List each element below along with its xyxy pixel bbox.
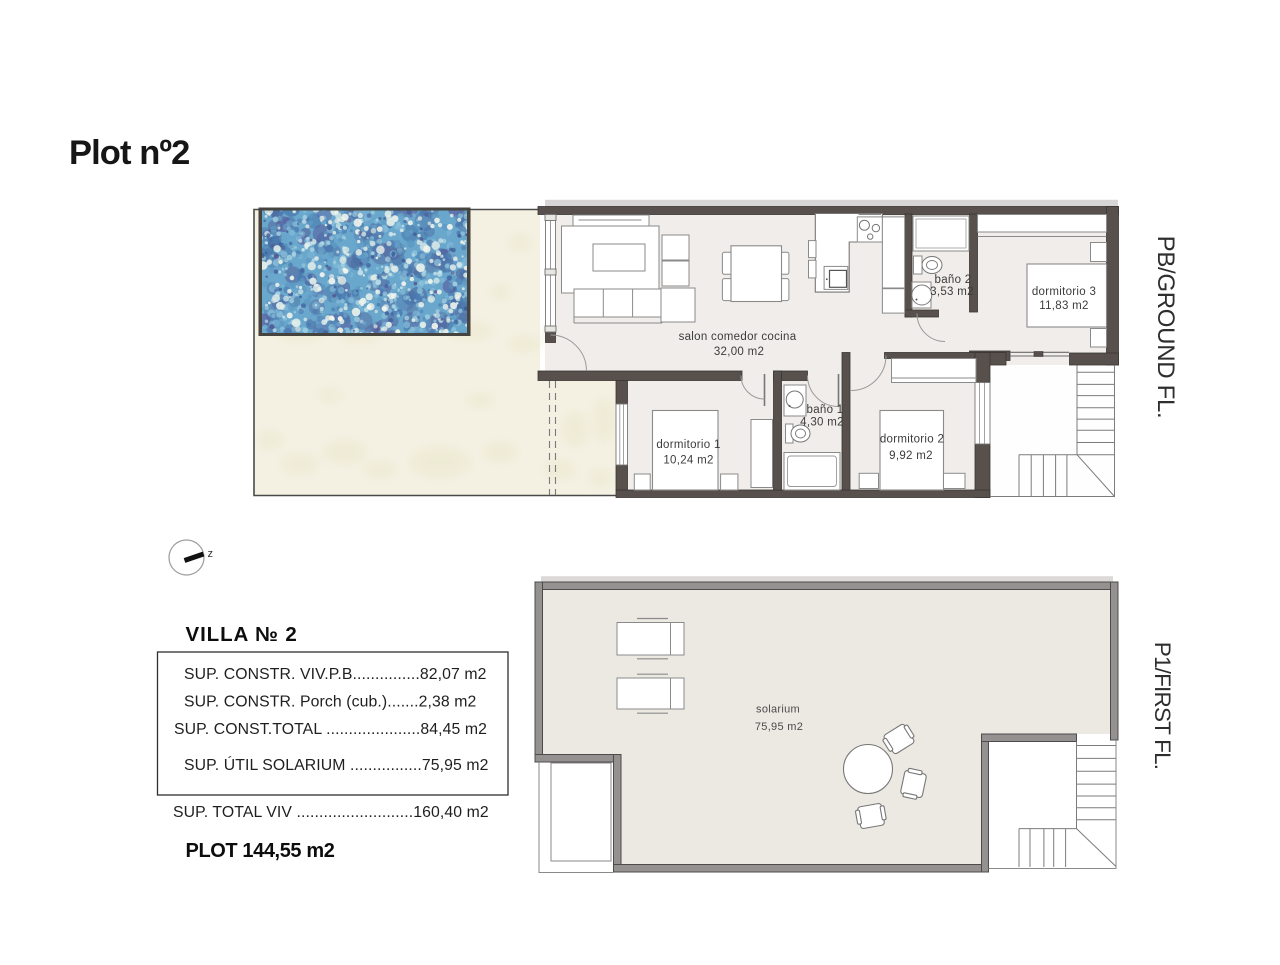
svg-text:SUP. CONSTR. Porch (cub.).....: SUP. CONSTR. Porch (cub.).......2,38 m2 [184,694,476,711]
svg-text:baño 1: baño 1 [807,404,844,416]
svg-text:10,24 m2: 10,24 m2 [663,455,713,467]
svg-text:baño 2: baño 2 [935,274,972,286]
svg-text:4,30 m2: 4,30 m2 [800,417,844,429]
svg-text:SUP. ÚTIL SOLARIUM ...........: SUP. ÚTIL SOLARIUM ................75,95… [184,755,489,774]
svg-text:32,00 m2: 32,00 m2 [714,346,764,358]
svg-text:SUP. CONST.TOTAL .............: SUP. CONST.TOTAL .....................84… [174,721,487,738]
svg-text:Plot nº2: Plot nº2 [69,134,189,172]
svg-text:SUP. TOTAL VIV ...............: SUP. TOTAL VIV .........................… [173,804,489,821]
svg-text:dormitorio 2: dormitorio 2 [880,434,944,446]
svg-text:salon comedor cocina: salon comedor cocina [679,331,797,343]
svg-text:dormitorio 1: dormitorio 1 [656,439,720,451]
svg-text:3,53 m2: 3,53 m2 [930,286,974,298]
svg-text:P1/FIRST FL.: P1/FIRST FL. [1150,642,1175,770]
svg-text:z: z [208,548,214,560]
svg-text:11,83 m2: 11,83 m2 [1039,300,1089,312]
svg-text:75,95 m2: 75,95 m2 [755,721,803,733]
svg-text:9,92 m2: 9,92 m2 [889,450,933,462]
svg-text:PLOT 144,55 m2: PLOT 144,55 m2 [186,840,335,862]
svg-text:PB/GROUND FL.: PB/GROUND FL. [1152,236,1179,419]
svg-text:solarium: solarium [756,704,800,716]
svg-text:dormitorio 3: dormitorio 3 [1032,286,1096,298]
svg-text:VILLA № 2: VILLA № 2 [186,623,298,646]
svg-text:SUP. CONSTR. VIV.P.B..........: SUP. CONSTR. VIV.P.B...............82,07… [184,666,487,683]
